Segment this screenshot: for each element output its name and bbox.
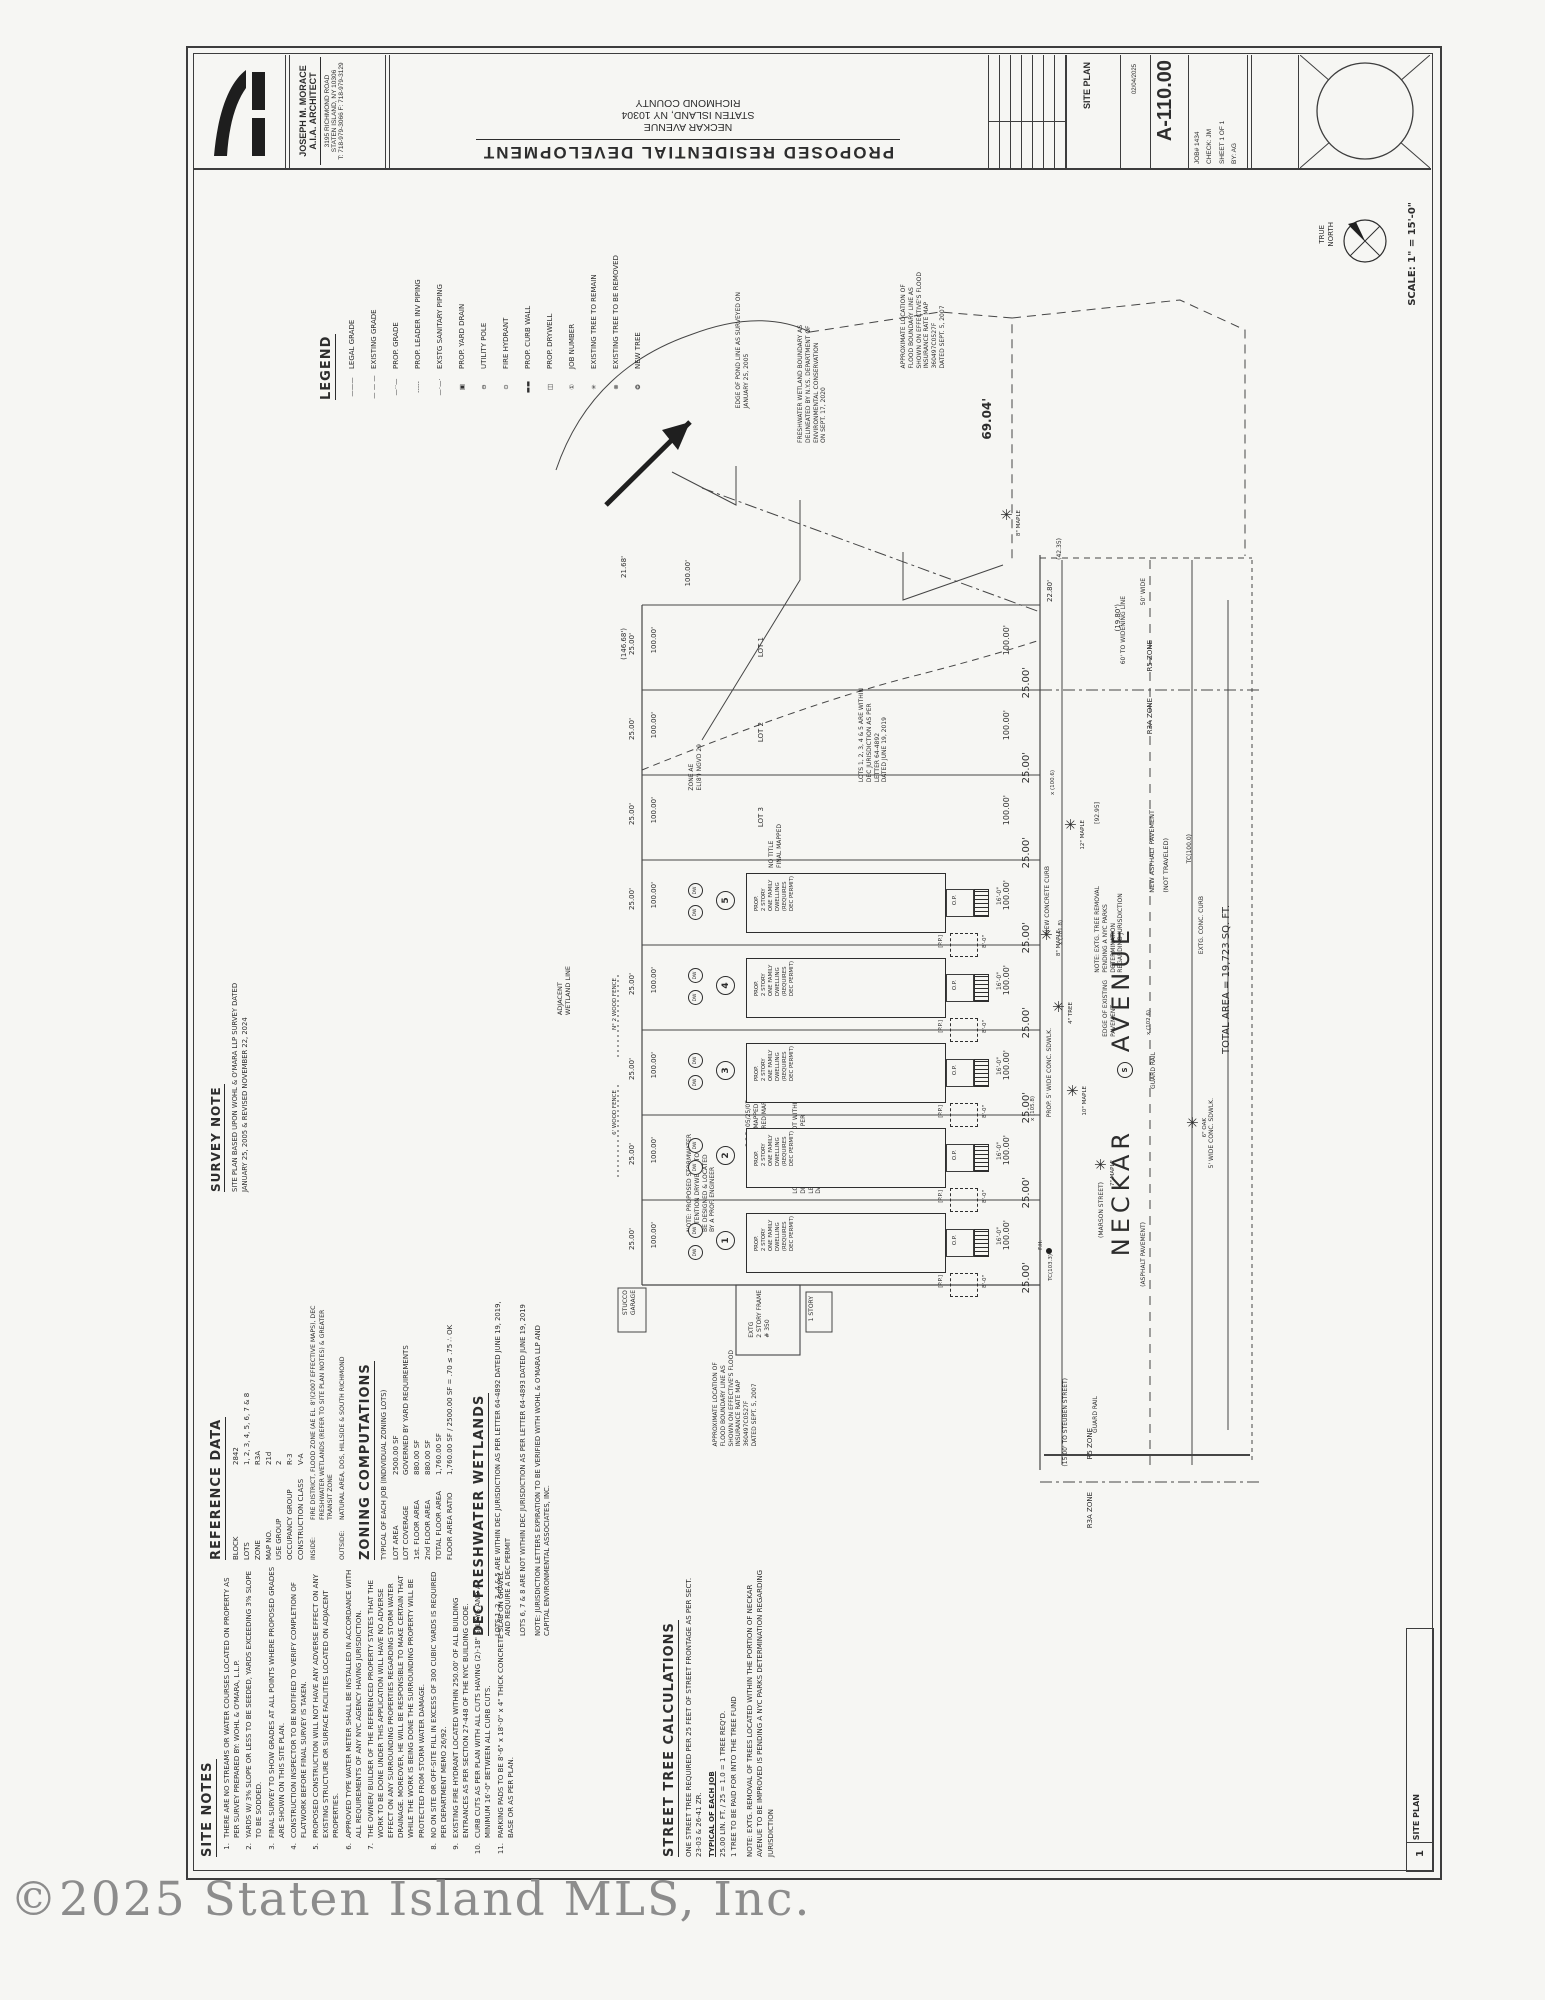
parking-pad-label: [P.P.]	[938, 1275, 945, 1288]
drawing-tag-number-box	[1406, 1842, 1434, 1872]
drawing-tag-label: SITE PLAN	[1412, 1794, 1422, 1840]
row-label: CONSTRUCTION CLASS	[296, 1465, 307, 1560]
data-row: TOTAL FLOOR AREA1,760.00 SF	[434, 1292, 445, 1560]
inside-label: INSIDE:	[310, 1520, 336, 1560]
plan-label: (MARSON STREET)	[1098, 1182, 1106, 1238]
tree-icon: ✳	[1066, 1084, 1079, 1099]
plan-label: x (100.6)	[1050, 770, 1057, 795]
note-number: 4.	[289, 1843, 309, 1857]
zoning-rows: LOT AREA2500.00 SFLOT COVERAGEGOVERNED B…	[391, 1292, 456, 1560]
note-number: 3.	[267, 1843, 287, 1857]
row-value: R-3	[285, 1292, 296, 1465]
dim-label: 100.00'	[1002, 795, 1012, 825]
row-value: 2842	[231, 1292, 242, 1465]
parking-pad-outline	[950, 1103, 978, 1127]
plan-label: 22.80'	[1046, 580, 1055, 602]
building-number: 5	[716, 891, 735, 910]
drywell-icon: DW	[688, 883, 703, 898]
legend-symbol-icon: ———	[348, 374, 356, 400]
tree-label: 7" MAPLE	[1110, 1160, 1117, 1186]
tree-label: 8" MAPLE	[1056, 930, 1063, 956]
legend-symbol-icon: ⊙	[502, 374, 510, 400]
dim-label: 16'-0"	[996, 887, 1004, 905]
legend-symbol-icon: ⊗	[612, 374, 620, 400]
dim-label: 25.00'	[1020, 1262, 1033, 1293]
dim-label: 25.00'	[1020, 837, 1033, 868]
dim-label: 25.00'	[1020, 667, 1033, 698]
legend-symbol-icon: ①	[568, 374, 576, 400]
note-number: 1.	[222, 1843, 242, 1857]
plan-label: (15.00' TO STEUBEN STREET)	[1062, 1378, 1070, 1467]
legend-item: ———LEGAL GRADE	[341, 248, 363, 400]
survey-note-text: SITE PLAN BASED UPON WOHL & O'MARA LLP S…	[230, 952, 250, 1192]
parking-pad-label: [P.P.]	[938, 935, 945, 948]
plan-label: FRESHWATER WETLAND BOUNDARY AS DELINEATE…	[797, 325, 828, 443]
note-number: 11.	[496, 1843, 516, 1857]
scanned-site-plan-page: JOSEPH M. MORACE A.I.A. ARCHITECT 3195 R…	[0, 0, 1545, 2000]
plan-label: NEW CONCRETE CURB	[1044, 866, 1052, 934]
site-note: 1.THERE ARE NO STREAMS OR WATER COURSES …	[222, 1565, 242, 1857]
row-label: FLOOR AREA RATIO	[445, 1475, 456, 1560]
row-label: BLOCK	[231, 1465, 242, 1560]
row-label: LOT AREA	[391, 1475, 402, 1560]
dwelling-text: PROP. 2 STORY ONE FAMILY DWELLING (REQUI…	[754, 876, 796, 911]
stair-hatch	[974, 974, 989, 1002]
porch-outline	[946, 1229, 974, 1257]
plan-label: (NOT TRAVELED)	[1162, 838, 1170, 893]
site-notes: SITE NOTES 1.THERE ARE NO STREAMS OR WAT…	[196, 1565, 518, 1857]
dim-label: 8'-0"	[982, 1105, 989, 1118]
row-label: OCCUPANCY GROUP	[285, 1465, 296, 1560]
row-label: LOT COVERAGE	[401, 1475, 412, 1560]
dwelling-text: PROP. 2 STORY ONE FAMILY DWELLING (REQUI…	[754, 1216, 796, 1251]
dim-label: 25.00'	[628, 633, 637, 655]
building-number: 2	[716, 1146, 735, 1165]
legend-symbol-icon: ❂	[634, 374, 642, 400]
legend-label: PROP. LEADER INV PIPING	[414, 279, 422, 369]
legend-symbol-icon: ◫	[546, 374, 554, 400]
row-label: TOTAL FLOOR AREA	[434, 1475, 445, 1560]
parking-pad-outline	[950, 933, 978, 957]
plan-label: TC(100.0)	[1186, 834, 1194, 863]
tree-label: 4" TREE	[1068, 1002, 1075, 1024]
note-number: 6.	[344, 1843, 364, 1857]
legend-item: ⊖UTILITY POLE	[473, 248, 495, 400]
dim-label: 8'-0"	[982, 1275, 989, 1288]
porch-outline	[946, 889, 974, 917]
true-north-label: TRUE NORTH	[1318, 222, 1336, 247]
dim-label: 100.00'	[650, 627, 659, 653]
zoning-subtitle: TYPICAL OF EACH JOB (INDIVIDUAL ZONING L…	[380, 1292, 388, 1560]
site-notes-list: 1.THERE ARE NO STREAMS OR WATER COURSES …	[222, 1565, 516, 1857]
reference-data-rows: BLOCK2842LOTS1, 2, 3, 4, 5, 6, 7 & 8ZONE…	[231, 1292, 307, 1560]
plan-label: 69.04'	[980, 398, 996, 440]
porch-label: O.P.	[952, 895, 959, 905]
site-notes-header: SITE NOTES	[200, 1759, 217, 1857]
dim-label: 8'-0"	[982, 1190, 989, 1203]
street-tree-lines: 25.00 LIN. FT. / 25 = 1.0 = 1 TREE REQ'D…	[718, 1565, 739, 1857]
data-row: USE GROUP2	[274, 1292, 285, 1560]
tree-icon: ✳	[1000, 508, 1013, 523]
porch-label: O.P.	[952, 980, 959, 990]
plan-label: TOTAL AREA = 19,723 SQ. FT.	[1220, 905, 1233, 1054]
data-row: LOTS1, 2, 3, 4, 5, 6, 7 & 8	[242, 1292, 253, 1560]
plan-label: (19.80')	[1114, 604, 1123, 631]
stair-hatch	[974, 889, 989, 917]
data-row: MAP NO.21d	[264, 1292, 275, 1560]
row-value: V-A	[296, 1292, 307, 1465]
porch-label: O.P.	[952, 1065, 959, 1075]
dwelling-text: PROP. 2 STORY ONE FAMILY DWELLING (REQUI…	[754, 961, 796, 996]
note-number: 5.	[311, 1843, 341, 1857]
data-row: 2nd FLOOR AREA880.00 SF	[423, 1292, 434, 1560]
plan-label: 5' WIDE CONC. SDWLK.	[1208, 1098, 1216, 1168]
site-note: 4.CONSTRUCTION INSPECTOR TO BE NOTIFIED …	[289, 1565, 309, 1857]
row-label: LOTS	[242, 1465, 253, 1560]
porch-outline	[946, 1059, 974, 1087]
dim-label: 100.00'	[650, 1137, 659, 1163]
tree-icon: ✳	[1064, 818, 1077, 833]
site-note: 8.NO ON SITE OR OFF-SITE FILL IN EXCESS …	[429, 1565, 449, 1857]
tree-label: 12" MAPLE	[1080, 820, 1087, 850]
site-note: 9.EXISTING FIRE HYDRANT LOCATED WITHIN 2…	[451, 1565, 471, 1857]
dim-label: 16'-0"	[996, 972, 1004, 990]
tree-icon: ✳	[1094, 1158, 1107, 1173]
plan-label: 6' WOOD FENCE	[612, 1090, 619, 1135]
dim-label: 25.00'	[1020, 922, 1033, 953]
parking-pad-label: [P.P.]	[938, 1020, 945, 1033]
lot-label: LOT 3	[757, 807, 766, 827]
legend-label: PROP. YARD DRAIN	[458, 304, 466, 369]
north-arrow-icon	[1340, 216, 1390, 266]
survey-note: SURVEY NOTE SITE PLAN BASED UPON WOHL & …	[205, 952, 250, 1192]
street-tree-line: 1 TREE TO BE PAID FOR INTO THE TREE FUND	[729, 1565, 740, 1857]
plan-label: (42.35)	[1056, 538, 1064, 560]
dim-label: 16'-0"	[996, 1142, 1004, 1160]
street-name: NECKAR AVENUE	[1106, 925, 1137, 1256]
street-tree-header: STREET TREE CALCULATIONS	[662, 1620, 679, 1857]
row-value: 1, 2, 3, 4, 5, 6, 7 & 8	[242, 1292, 253, 1465]
plan-label: 50' WIDE	[1140, 578, 1148, 605]
row-label: ZONE	[253, 1465, 264, 1560]
plan-label: NEW ASPHALT PAVEMENT	[1148, 810, 1156, 893]
dim-label: 16'-0"	[996, 1227, 1004, 1245]
building-number: 4	[716, 976, 735, 995]
zone-label: R3A ZONE	[1146, 698, 1155, 734]
tree-label: 10" MAPLE	[1082, 1086, 1089, 1116]
building-number: 1	[716, 1231, 735, 1250]
dim-label: 100.00'	[650, 967, 659, 993]
dim-label: 25.00'	[628, 1143, 637, 1165]
tree-icon: ✳	[1186, 1116, 1199, 1131]
dec-paragraph: NOTE: JURISDICTION LETTERS EXPIRATION TO…	[534, 1296, 554, 1636]
dim-label: 25.00'	[628, 803, 637, 825]
parking-pad-label: [P.P.]	[938, 1190, 945, 1203]
plan-label: EDGE OF POND LINE AS SURVEYED ON JANUARY…	[735, 292, 751, 408]
porch-outline	[946, 1144, 974, 1172]
legend-symbol-icon: ▬▬	[524, 374, 532, 400]
note-number: 2.	[244, 1843, 264, 1857]
legend-label: EXISTING TREE TO REMAIN	[590, 274, 598, 369]
parking-pad-outline	[950, 1188, 978, 1212]
tree-label: 8" MAPLE	[1016, 510, 1023, 536]
row-label: MAP NO.	[264, 1465, 275, 1560]
plan-label: ADJACENT WETLAND LINE	[556, 966, 573, 1015]
plan-label: EXTG 2 STORY FRAME # 350	[748, 1290, 771, 1338]
drywell-icon: DW	[688, 905, 703, 920]
sewer-manhole-icon: S	[1117, 1062, 1133, 1078]
site-note: 5.PROPOSED CONSTRUCTION WILL NOT HAVE AN…	[311, 1565, 341, 1857]
street-tree-note: NOTE: EXTG. REMOVAL OF TREES LOCATED WIT…	[745, 1565, 775, 1857]
legend-label: EXSTG SANITARY PIPING	[436, 284, 444, 369]
note-text: PROPOSED CONSTRUCTION WILL NOT HAVE ANY …	[311, 1565, 341, 1838]
plan-label: F.H.	[1038, 1240, 1045, 1250]
note-text: NO ON SITE OR OFF-SITE FILL IN EXCESS OF…	[429, 1565, 449, 1838]
row-value: R3A	[253, 1292, 264, 1465]
zone-label: R5 ZONE	[1146, 640, 1155, 672]
dim-label: 100.00'	[650, 1222, 659, 1248]
stair-hatch	[974, 1144, 989, 1172]
note-text: THE OWNER/ BUILDER OF THE REFERENCED PRO…	[366, 1565, 427, 1838]
dim-label: 100.00'	[650, 797, 659, 823]
site-note: 2.YARDS W/ 3% SLOPE OR LESS TO BE SEEDED…	[244, 1565, 264, 1857]
plan-label: 100.00'	[684, 560, 693, 586]
legend-item: ⊗EXISTING TREE TO BE REMOVED	[605, 248, 627, 400]
legend-label: EXISTING GRADE	[370, 309, 378, 369]
plan-label: [92.95]	[1094, 802, 1102, 824]
plan-label: x (102.6)	[1146, 1010, 1153, 1035]
data-row: 1st. FLOOR AREA880.00 SF	[412, 1292, 423, 1560]
dim-label: 25.00'	[1020, 1092, 1033, 1123]
scale-label: SCALE: 1" = 15'-0"	[1406, 202, 1419, 306]
dwelling-text: PROP. 2 STORY ONE FAMILY DWELLING (REQUI…	[754, 1046, 796, 1081]
row-value: GOVERNED BY YARD REQUIREMENTS	[401, 1292, 412, 1475]
dim-label: 100.00'	[650, 1052, 659, 1078]
drywell-icon: DW	[688, 1245, 703, 1260]
row-value: 880.00 SF	[412, 1292, 423, 1475]
data-row: ZONER3A	[253, 1292, 264, 1560]
dim-label: 16'-0"	[996, 1057, 1004, 1075]
legend-items: ———LEGAL GRADE— — —EXISTING GRADE—··—PRO…	[341, 248, 649, 400]
reference-inside-row: INSIDE: FIRE DISTRICT, FLOOD ZONE (AE EL…	[310, 1292, 336, 1560]
dim-label: 25.00'	[1020, 1177, 1033, 1208]
dim-label: 100.00'	[650, 712, 659, 738]
drywell-icon: DW	[688, 1160, 703, 1175]
drywell-icon: DW	[688, 968, 703, 983]
data-row: FLOOR AREA RATIO1,760.00 SF / 2500.00 SF…	[445, 1292, 456, 1560]
legend-symbol-icon: -----	[414, 374, 422, 400]
legend-symbol-icon: —··—	[392, 374, 400, 400]
site-note: 10.CURB CUTS AS PER PLAN WITH ALL CUTS H…	[473, 1565, 493, 1857]
data-row: LOT COVERAGEGOVERNED BY YARD REQUIREMENT…	[401, 1292, 412, 1560]
dim-label: 8'-0"	[982, 935, 989, 948]
site-note: 3.FINAL SURVEY TO SHOW GRADES AT ALL POI…	[267, 1565, 287, 1857]
legend-symbol-icon: — — —	[370, 374, 378, 400]
porch-label: O.P.	[952, 1150, 959, 1160]
note-number: 8.	[429, 1843, 449, 1857]
dim-label: 25.00'	[628, 973, 637, 995]
drawing-tag-number: 1	[1414, 1850, 1427, 1857]
legend-item: ▣PROP. YARD DRAIN	[451, 248, 473, 400]
plan-label: ZONE AE EL(8') NGVD 29	[688, 744, 704, 791]
legend-label: PROP. GRADE	[392, 322, 400, 369]
drywell-icon: DW	[688, 1138, 703, 1153]
note-text: CURB CUTS AS PER PLAN WITH ALL CUTS HAVI…	[473, 1565, 493, 1838]
row-value: 1,760.00 SF	[434, 1292, 445, 1475]
note-text: APPROVED TYPE WATER METER SHALL BE INSTA…	[344, 1565, 364, 1838]
note-number: 10.	[473, 1843, 493, 1857]
plan-label: LOTS 1, 2, 3, 4 & 5 ARE WITHIN DEC JURIS…	[858, 688, 889, 782]
inside-value: FIRE DISTRICT, FLOOD ZONE (AE EL. 8')(20…	[310, 1292, 336, 1520]
legend-symbol-icon: ✳	[590, 374, 598, 400]
plan-label: NO TITLE FINAL MAPPED	[768, 824, 784, 868]
row-label: 1st. FLOOR AREA	[412, 1475, 423, 1560]
plan-label: EDGE OF EXISTING PAVEMENT	[1102, 980, 1118, 1037]
dim-label: 25.00'	[628, 1058, 637, 1080]
plan-label: GUARD RAIL	[1150, 1052, 1158, 1089]
legend-item: —··—PROP. GRADE	[385, 248, 407, 400]
legend-symbol-icon: —·—·	[436, 374, 444, 400]
dim-label: 8'-0"	[982, 1020, 989, 1033]
dim-label: 25.00'	[628, 888, 637, 910]
tree-icon: ✳	[1040, 928, 1053, 943]
outside-value: NATURAL AREA, DOS, HILLSIDE & SOUTH RICH…	[339, 1292, 348, 1520]
drywell-icon: DW	[688, 1223, 703, 1238]
parking-pad-outline	[950, 1018, 978, 1042]
stair-hatch	[974, 1229, 989, 1257]
row-value: 880.00 SF	[423, 1292, 434, 1475]
dim-label: 100.00'	[1002, 710, 1012, 740]
note-text: YARDS W/ 3% SLOPE OR LESS TO BE SEEDED, …	[244, 1565, 264, 1838]
plan-label: N° 2 WOOD FENCE	[612, 978, 619, 1030]
dwelling-text: PROP. 2 STORY ONE FAMILY DWELLING (REQUI…	[754, 1131, 796, 1166]
tree-label: 6" OAK	[1202, 1118, 1209, 1137]
legend-item: -----PROP. LEADER INV PIPING	[407, 248, 429, 400]
legend-symbol-icon: ⊖	[480, 374, 488, 400]
row-label: USE GROUP	[274, 1465, 285, 1560]
survey-note-header: SURVEY NOTE	[209, 1084, 225, 1192]
legend-item: —·—·EXSTG SANITARY PIPING	[429, 248, 451, 400]
building-number: 3	[716, 1061, 735, 1080]
mls-watermark: ©2025 Staten Island MLS, Inc.	[10, 1872, 811, 1927]
lot-label: LOT 2	[757, 722, 766, 742]
plan-label: APPROXIMATE LOCATION OF FLOOD BOUNDARY L…	[712, 1350, 759, 1447]
legend-item: ⊙FIRE HYDRANT	[495, 248, 517, 400]
note-text: PARKING PADS TO BE 8'-6" x 18'-0" x 4" T…	[496, 1565, 516, 1838]
parking-pad-outline	[950, 1273, 978, 1297]
note-number: 7.	[366, 1843, 427, 1857]
street-tree-subtitle: TYPICAL OF EACH JOB	[708, 1565, 716, 1857]
drywell-icon: DW	[688, 1075, 703, 1090]
plan-label: 1 STORY	[808, 1296, 816, 1321]
legend-item: ❂NEW TREE	[627, 248, 649, 400]
legend-label: PROP. CURB WALL	[524, 306, 532, 369]
dim-label: 25.00'	[628, 718, 637, 740]
porch-outline	[946, 974, 974, 1002]
reference-outside-row: OUTSIDE: NATURAL AREA, DOS, HILLSIDE & S…	[339, 1292, 348, 1560]
row-value: 2500.00 SF	[391, 1292, 402, 1475]
legend-label: NEW TREE	[634, 332, 642, 369]
dim-label: 25.00'	[628, 1228, 637, 1250]
porch-label: O.P.	[952, 1235, 959, 1245]
legend-label: UTILITY POLE	[480, 323, 488, 369]
plan-label: PROP. 5' WIDE CONC. SDWLK.	[1046, 1028, 1054, 1117]
data-row: CONSTRUCTION CLASSV-A	[296, 1292, 307, 1560]
legend-label: EXISTING TREE TO BE REMOVED	[612, 255, 620, 369]
site-note: 6.APPROVED TYPE WATER METER SHALL BE INS…	[344, 1565, 364, 1857]
note-number: 9.	[451, 1843, 471, 1857]
legend-item: ✳EXISTING TREE TO REMAIN	[583, 248, 605, 400]
dim-label: 100.00'	[1002, 625, 1012, 655]
plan-label: NOTE: EXTG. TREE REMOVAL PENDING A NYC P…	[1094, 886, 1125, 973]
plan-label: TC(103.3)	[1048, 1254, 1055, 1281]
plan-label: EXTG. CONC. CURB	[1198, 896, 1206, 954]
outside-label: OUTSIDE:	[339, 1520, 348, 1560]
row-value: 2	[274, 1292, 285, 1465]
stair-hatch	[974, 1059, 989, 1087]
legend-label: FIRE HYDRANT	[502, 318, 510, 369]
row-label: 2nd FLOOR AREA	[423, 1475, 434, 1560]
lot-label: LOT 1	[757, 637, 766, 657]
data-row: LOT AREA2500.00 SF	[391, 1292, 402, 1560]
legend-symbol-icon: ▣	[458, 374, 466, 400]
plan-label: APPROXIMATE LOCATION OF FLOOD BOUNDARY L…	[900, 272, 947, 369]
legend-item: — — —EXISTING GRADE	[363, 248, 385, 400]
street-tree-line: 25.00 LIN. FT. / 25 = 1.0 = 1 TREE REQ'D…	[718, 1565, 729, 1857]
reference-data: REFERENCE DATA BLOCK2842LOTS1, 2, 3, 4, …	[205, 1292, 456, 1560]
legend-header: LEGEND	[319, 334, 336, 400]
street-tree-intro: ONE STREET TREE REQUIRED PER 25 FEET OF …	[684, 1565, 704, 1857]
legend-label: PROP. DRYWELL	[546, 314, 554, 369]
plan-label: (ASPHALT PAVEMENT)	[1140, 1222, 1148, 1287]
dim-label: 25.00'	[1020, 1007, 1033, 1038]
drywell-icon: DW	[688, 990, 703, 1005]
tree-icon: ✳	[1052, 1000, 1065, 1015]
street-tree-calcs: STREET TREE CALCULATIONS ONE STREET TREE…	[658, 1565, 776, 1857]
zoning-header: ZONING COMPUTATIONS	[358, 1361, 375, 1560]
parking-pad-label: [P.P.]	[938, 1105, 945, 1118]
legend-label: LEGAL GRADE	[348, 320, 356, 369]
reference-data-header: REFERENCE DATA	[209, 1417, 226, 1560]
note-text: EXISTING FIRE HYDRANT LOCATED WITHIN 250…	[451, 1565, 471, 1838]
dim-label: 25.00'	[1020, 752, 1033, 783]
data-row: BLOCK2842	[231, 1292, 242, 1560]
legend-label: JOB NUMBER	[568, 324, 576, 369]
dim-label: 100.00'	[650, 882, 659, 908]
note-text: THERE ARE NO STREAMS OR WATER COURSES LO…	[222, 1565, 242, 1838]
site-note: 7.THE OWNER/ BUILDER OF THE REFERENCED P…	[366, 1565, 427, 1857]
data-row: OCCUPANCY GROUPR-3	[285, 1292, 296, 1560]
zone-label: R5 ZONE	[1086, 1428, 1095, 1460]
note-text: FINAL SURVEY TO SHOW GRADES AT ALL POINT…	[267, 1565, 287, 1838]
row-value: 21d	[264, 1292, 275, 1465]
plan-label: STUCCO GARAGE	[622, 1290, 638, 1315]
legend-item: ▬▬PROP. CURB WALL	[517, 248, 539, 400]
plan-label: 21.68'	[620, 556, 629, 578]
drywell-icon: DW	[688, 1053, 703, 1068]
legend: LEGEND ———LEGAL GRADE— — —EXISTING GRADE…	[315, 248, 649, 400]
legend-item: ①JOB NUMBER	[561, 248, 583, 400]
row-value: 1,760.00 SF / 2500.00 SF = .70 ≤ .75 ∴ O…	[445, 1292, 456, 1475]
zone-label: R3A ZONE	[1086, 1492, 1095, 1528]
dec-paragraph: LOTS 6, 7 & 8 ARE NOT WITHIN DEC JURISDI…	[519, 1296, 529, 1636]
note-text: CONSTRUCTION INSPECTOR TO BE NOTIFIED TO…	[289, 1565, 309, 1838]
site-note: 11.PARKING PADS TO BE 8'-6" x 18'-0" x 4…	[496, 1565, 516, 1857]
legend-item: ◫PROP. DRYWELL	[539, 248, 561, 400]
